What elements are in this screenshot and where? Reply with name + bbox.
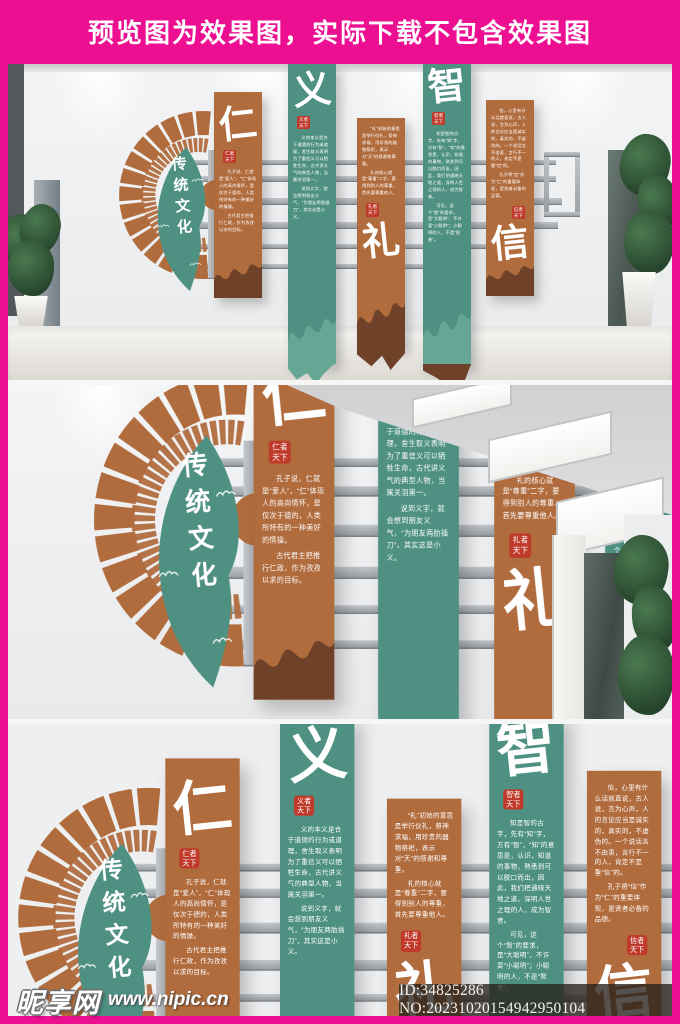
banner-ren-text: 孔子说，仁就是“爱人”，“仁”体现人的高尚情怀，是仅次于德的，人类所特有的一种美… — [165, 875, 239, 981]
banner-yi: 义 义者 天下 义的本义是合于道德的行为或道理，舍生取义表明为了重信义可以牺牲生… — [280, 724, 354, 1016]
banner-zhi-text: 知是智的古字，先有“知”字，方有“智”，“知”的意思是，认识，知道的事物，熟悉到… — [423, 129, 471, 246]
cloud-ornament-icon — [130, 889, 150, 901]
banner-tail — [288, 362, 336, 380]
banner-li-seal: 礼者 天下 — [509, 534, 531, 558]
banner-li: “礼”初始的意思是举行仪礼，祭神求福，用珍贵的器物祭祀，表示对“天”的感谢和尊重… — [357, 118, 405, 348]
banner-tail — [357, 346, 405, 370]
banner-yi-calligraphy: 义 — [285, 724, 350, 792]
banner-zhi-calligraphy: 智 — [426, 66, 468, 110]
banner-xin-seal: 信者 天下 — [627, 935, 647, 956]
wave-decoration — [378, 710, 459, 719]
watermark-logo: 昵享网 www.nipic.cn — [16, 982, 229, 1018]
banner-xin: 信，心里有什么话就直说，古人说，言为心声，人的言论应当是诚实的，真实的，不虚伪的… — [587, 771, 661, 1016]
cloud-ornament-icon — [191, 176, 204, 184]
banner-ren-seal: 仁者 天下 — [179, 848, 199, 869]
culture-wall: 传统文化 仁 仁者 天下 孔子说，仁就是“爱人”，“仁”体现人的高尚情怀，是仅次… — [8, 64, 672, 380]
banner-xin-seal: 信者 天下 — [512, 206, 525, 219]
wall-slot: 传统文化 仁 仁者 天下 孔子说，仁就是“爱人”，“仁”体现人的高尚情怀，是仅次… — [8, 724, 672, 1016]
banner-xin-calligraphy: 信 — [489, 224, 531, 268]
cloud-ornament-icon — [77, 960, 97, 972]
site-name: 昵享网 — [16, 981, 100, 1020]
cloud-ornament-icon — [157, 222, 170, 230]
door-frame — [552, 535, 586, 719]
banner-yi-text: 义的本义是合于道德的行为或道理，舍生取义表明为了重信义可以牺牲生命，古代讲义气的… — [280, 823, 354, 961]
banner-li-seal: 礼者 天下 — [366, 203, 379, 216]
cloud-ornament-icon — [189, 260, 202, 268]
banner-yi: 义 义者 天下 义的本义是合于道德的行为或道理，舍生取义表明为了重信义可以牺牲生… — [288, 64, 336, 364]
lattice-frame — [544, 152, 549, 217]
banner-zhi: 智 智者 天下 知是智的古字，先有“知”字，方有“智”，“知”的意思是，认识，知… — [423, 64, 471, 366]
banner-tail — [423, 364, 471, 380]
banner-li-text: “礼”初始的意思是举行仪礼，祭神求福，用珍贵的器物祭祀，表示对“天”的感谢和尊重… — [357, 118, 405, 199]
banner-zhi-seal: 智者 天下 — [503, 789, 523, 810]
banner-yi-calligraphy: 义 — [291, 70, 333, 114]
banner-ren-text: 孔子说，仁就是“爱人”，“仁”体现人的高尚情怀，是仅次于德的，人类所特有的一种美… — [214, 167, 262, 235]
banner-zhi-seal: 智者 天下 — [432, 112, 445, 125]
banner-xin: 信，心里有什么话就直说，古人说，言为心声，人的言论应当是诚实的，真实的，不虚伪的… — [486, 100, 534, 296]
banner-ren-calligraphy: 仁 — [217, 104, 259, 148]
banner-li-seal: 礼者 天下 — [401, 931, 421, 952]
banner-ren: 仁 仁者 天下 孔子说，仁就是“爱人”，“仁”体现人的高尚情怀，是仅次于德的，人… — [165, 758, 239, 1016]
wave-decoration — [288, 304, 336, 364]
banner-xin-text: 信，心里有什么话就直说，古人说，言为心声，人的言论应当是诚实的，真实的，不虚伪的… — [587, 771, 661, 929]
banner-zhi-text: 知是智的古字，先有“知”字，方有“智”，“知”的意思是，认识，知道的事物，熟悉到… — [489, 816, 563, 997]
banner-li-text: “礼”初始的意思是举行仪礼，祭神求福，用珍贵的器物祭祀，表示对“天”的感谢和尊重… — [387, 799, 461, 925]
banner-yi-seal: 义者 天下 — [294, 795, 314, 816]
banner-li-calligraphy: 礼 — [360, 221, 402, 265]
wave-decoration — [214, 253, 262, 298]
culture-wall: 传统文化 仁 仁者 天下 孔子说，仁就是“爱人”，“仁”体现人的高尚情怀，是仅次… — [8, 724, 672, 1016]
banner-ren: 仁 仁者 天下 孔子说，仁就是“爱人”，“仁”体现人的高尚情怀，是仅次于德的，人… — [254, 385, 335, 700]
wave-decoration — [423, 296, 471, 366]
banner-xin-text: 信，心里有什么话就直说，古人说，言为心声，人的言论应当是诚实的，真实的，不虚伪的… — [486, 100, 534, 202]
wall-preview-panel-3: 传统文化 仁 仁者 天下 孔子说，仁就是“爱人”，“仁”体现人的高尚情怀，是仅次… — [8, 724, 672, 1016]
banner-ren: 仁 仁者 天下 孔子说，仁就是“爱人”，“仁”体现人的高尚情怀，是仅次于德的，人… — [214, 92, 262, 298]
preview-frame: 预览图为效果图，实际下载不包含效果图 — [0, 0, 680, 1024]
lattice-frame — [544, 152, 580, 157]
wall-preview-panel-1: 传统文化 仁 仁者 天下 孔子说，仁就是“爱人”，“仁”体现人的高尚情怀，是仅次… — [8, 64, 672, 380]
banner-ren-seal: 仁者 天下 — [223, 150, 236, 163]
wave-decoration — [357, 288, 405, 348]
banner-zhi-calligraphy: 智 — [494, 724, 559, 786]
fan-shape — [25, 385, 286, 703]
preview-notice: 预览图为效果图，实际下载不包含效果图 — [0, 0, 680, 62]
fan-shape — [78, 90, 233, 300]
wall-slot: 传统文化 仁 仁者 天下 孔子说，仁就是“爱人”，“仁”体现人的高尚情怀，是仅次… — [8, 64, 672, 380]
site-url: www.nipic.cn — [108, 989, 229, 1011]
banner-yi-seal: 义者 天下 — [297, 116, 310, 129]
image-id-bar: ID:34825286 NO:20231020154942950104 — [399, 984, 672, 1016]
lattice-frame — [544, 212, 580, 217]
banner-zhi: 智 智者 天下 知是智的古字，先有“知”字，方有“智”，“知”的意思是，认识，知… — [489, 724, 563, 1016]
image-id-text: ID:34825286 NO:20231020154942950104 — [399, 982, 664, 1018]
lattice-frame — [575, 152, 580, 217]
banner-ren-calligraphy: 仁 — [170, 777, 235, 845]
banner-ren-text: 孔子说，仁就是“爱人”，“仁”体现人的高尚情怀，是仅次于德的，人类所特有的一种美… — [254, 471, 335, 591]
banner-yi-text: 义的本义是合于道德的行为或道理，舍生取义表明为了重信义可以牺牲生命，古代讲义气的… — [288, 133, 336, 222]
wall-preview-panel-2: 传统文化 仁 仁者 天下 孔子说，仁就是“爱人”，“仁”体现人的高尚情怀，是仅次… — [8, 385, 672, 719]
wave-decoration — [254, 621, 335, 700]
